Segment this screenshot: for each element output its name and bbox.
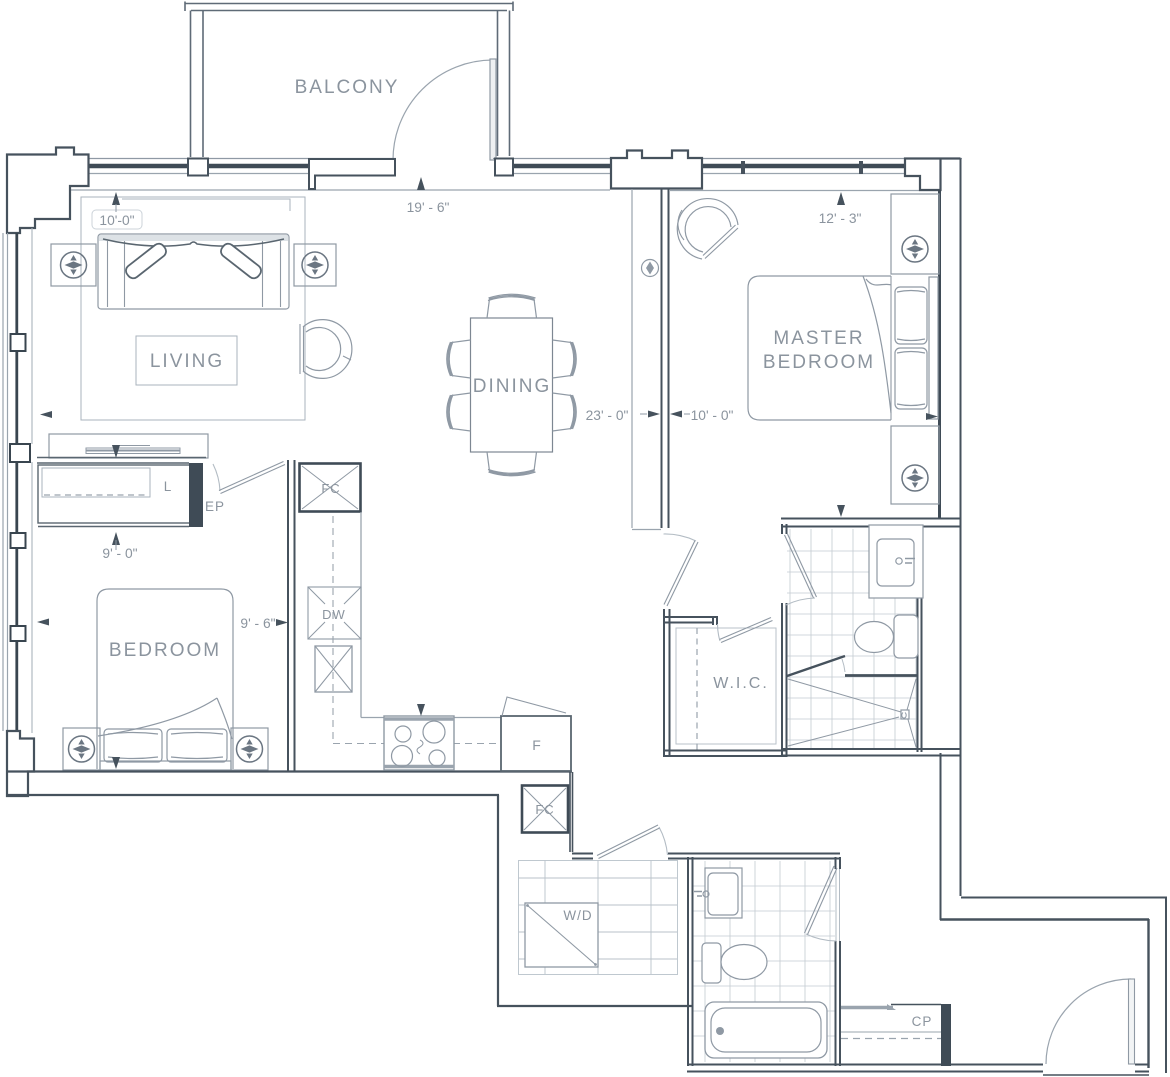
svg-text:9' - 0": 9' - 0" xyxy=(102,546,137,561)
svg-text:10'-0": 10'-0" xyxy=(99,213,134,228)
svg-text:19' - 6": 19' - 6" xyxy=(407,200,450,215)
svg-text:EP: EP xyxy=(205,499,225,514)
svg-text:CP: CP xyxy=(912,1014,933,1029)
svg-text:10' - 0": 10' - 0" xyxy=(691,408,734,423)
svg-text:DW: DW xyxy=(322,607,346,622)
svg-text:FC: FC xyxy=(535,802,554,817)
svg-text:BEDROOM: BEDROOM xyxy=(763,352,875,373)
svg-text:FC: FC xyxy=(321,481,340,496)
svg-text:12' - 3": 12' - 3" xyxy=(819,211,862,226)
svg-text:MASTER: MASTER xyxy=(773,328,864,349)
svg-text:9' - 6": 9' - 6" xyxy=(240,616,275,631)
svg-text:LIVING: LIVING xyxy=(150,351,224,372)
svg-text:W.I.C.: W.I.C. xyxy=(713,675,769,692)
svg-text:W/D: W/D xyxy=(563,908,592,923)
svg-text:L: L xyxy=(164,479,173,494)
svg-text:BEDROOM: BEDROOM xyxy=(109,640,221,661)
svg-text:23' - 0": 23' - 0" xyxy=(586,408,629,423)
svg-text:F: F xyxy=(532,737,542,753)
svg-text:DINING: DINING xyxy=(473,376,552,397)
svg-text:BALCONY: BALCONY xyxy=(295,77,400,98)
